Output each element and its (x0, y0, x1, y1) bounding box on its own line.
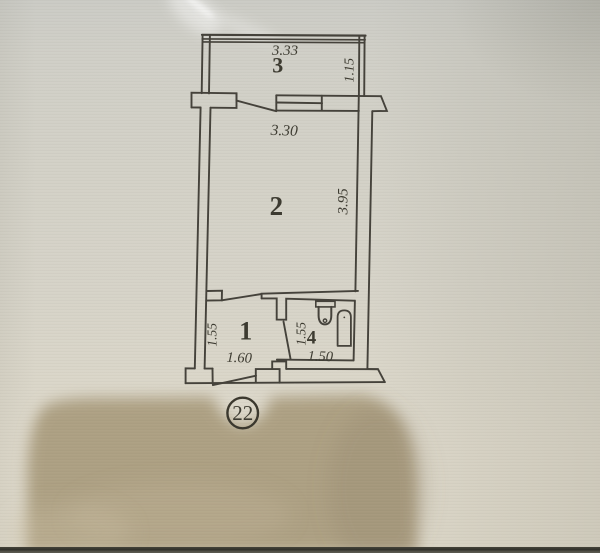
svg-text:2: 2 (270, 191, 284, 221)
svg-text:1.60: 1.60 (226, 350, 253, 367)
svg-text:1.55: 1.55 (204, 323, 219, 347)
svg-text:1.15: 1.15 (343, 58, 358, 83)
svg-text:3: 3 (272, 53, 283, 78)
svg-text:22: 22 (232, 401, 253, 425)
svg-text:1.55: 1.55 (294, 322, 309, 346)
svg-text:1.50: 1.50 (307, 348, 334, 365)
svg-text:3.95: 3.95 (335, 188, 351, 216)
svg-text:1: 1 (239, 317, 252, 346)
svg-text:3.30: 3.30 (269, 122, 298, 140)
